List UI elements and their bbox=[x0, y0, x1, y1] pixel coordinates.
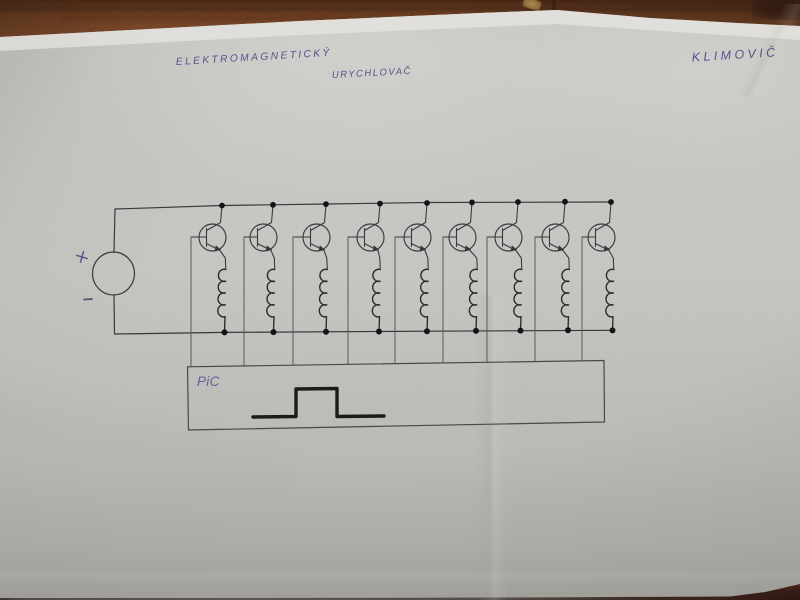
svg-text:PiC: PiC bbox=[197, 374, 220, 389]
svg-text:KLIMOVIČ: KLIMOVIČ bbox=[691, 44, 779, 64]
svg-text:URYCHLOVAČ: URYCHLOVAČ bbox=[332, 66, 413, 81]
svg-text:ELEKTROMAGNETICKÝ: ELEKTROMAGNETICKÝ bbox=[175, 46, 332, 68]
